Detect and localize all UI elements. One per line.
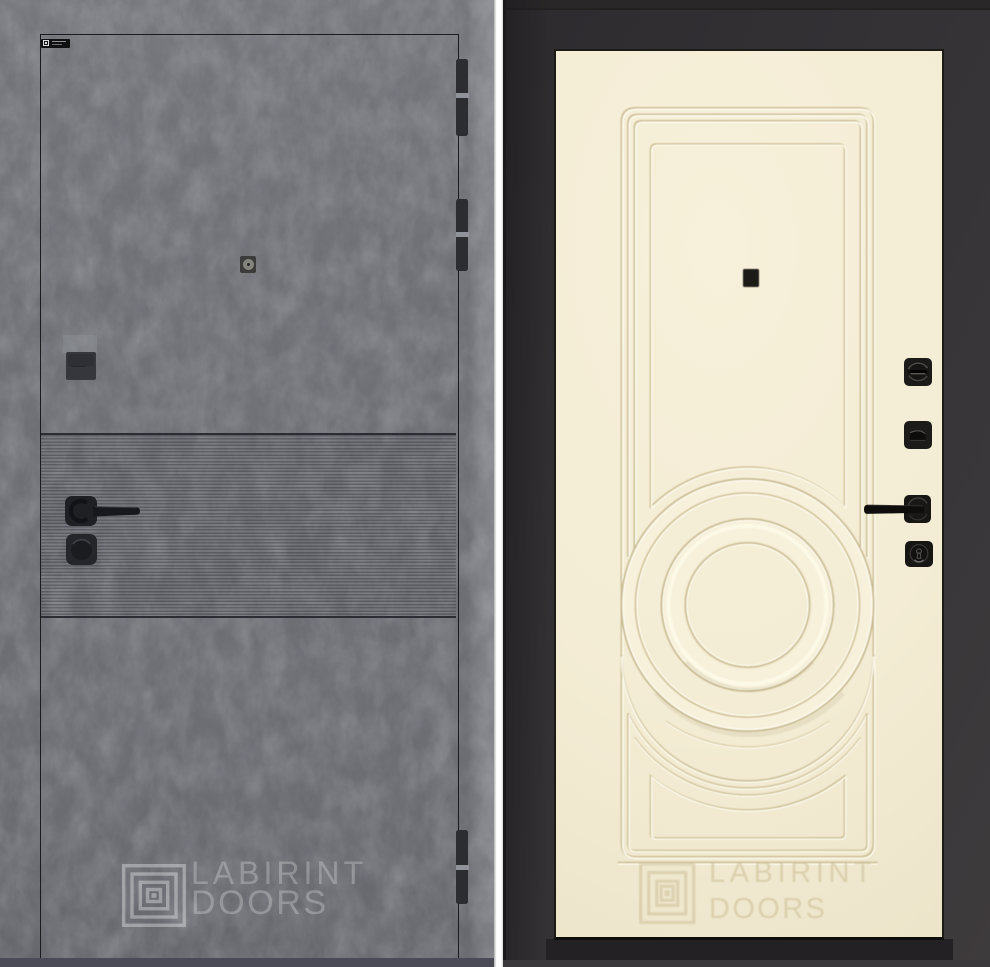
- svg-text:LABIRINT: LABIRINT: [709, 857, 876, 889]
- svg-text:DOORS: DOORS: [709, 893, 827, 925]
